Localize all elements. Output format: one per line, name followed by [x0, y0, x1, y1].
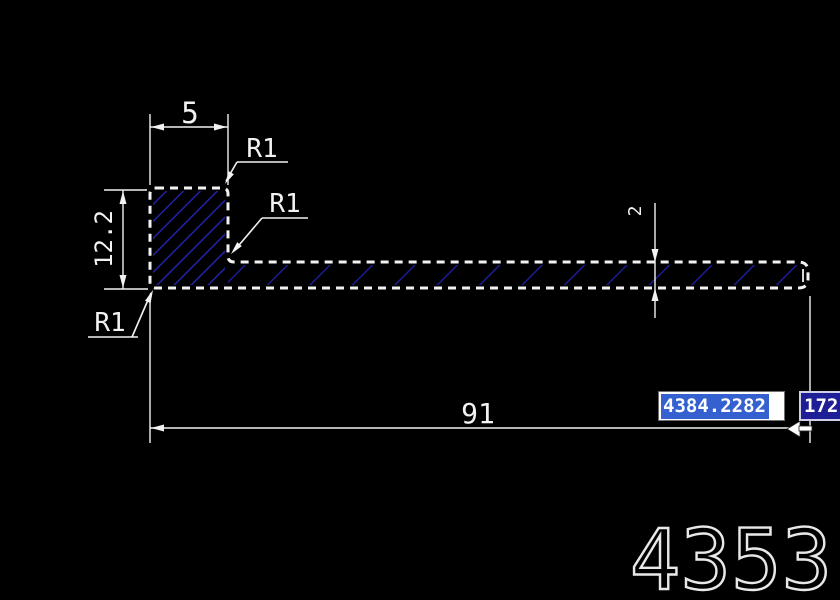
callout-fillet-bottom[interactable]: R1	[88, 290, 153, 338]
callout-fillet-inner[interactable]: R1	[231, 189, 308, 254]
arrowhead	[151, 124, 164, 131]
drawing-canvas[interactable]: 5 12.2 2 91 R1	[0, 0, 840, 600]
arrowhead	[145, 290, 153, 303]
arrowhead	[652, 249, 659, 262]
callout-text: R1	[94, 308, 125, 338]
arrowhead	[151, 425, 164, 432]
dimension-left-height[interactable]: 12.2	[90, 190, 148, 289]
dimension-value-overflow-box[interactable]: 172	[799, 391, 840, 421]
hatch-vertical-leg	[153, 191, 225, 285]
arrowhead	[120, 275, 127, 288]
section-hatch	[153, 191, 806, 285]
dim-thickness-text: 2	[625, 206, 646, 217]
arrowhead	[225, 171, 234, 184]
selected-dimension-value: 4384.2282	[661, 394, 769, 419]
hatch-horizontal-strip	[228, 265, 806, 285]
arrowhead	[652, 288, 659, 301]
cad-drawing-area[interactable]: 5 12.2 2 91 R1	[0, 0, 840, 600]
dim-left-height-text: 12.2	[90, 210, 118, 268]
drawing-number-text: 4353	[630, 511, 832, 600]
cursor-arrow-icon	[787, 421, 812, 437]
dimension-top-width[interactable]: 5	[150, 96, 228, 185]
arrowhead	[214, 124, 227, 131]
callout-fillet-top[interactable]: R1	[225, 134, 288, 184]
dimension-text-editor[interactable]: 4384.2282	[658, 391, 785, 421]
callout-text: R1	[269, 189, 300, 219]
dim-top-width-text: 5	[181, 96, 198, 130]
dim-length-text: 91	[461, 397, 495, 430]
overflow-dimension-value: 172	[804, 395, 838, 417]
callout-text: R1	[246, 134, 277, 164]
arrowhead	[120, 191, 127, 204]
